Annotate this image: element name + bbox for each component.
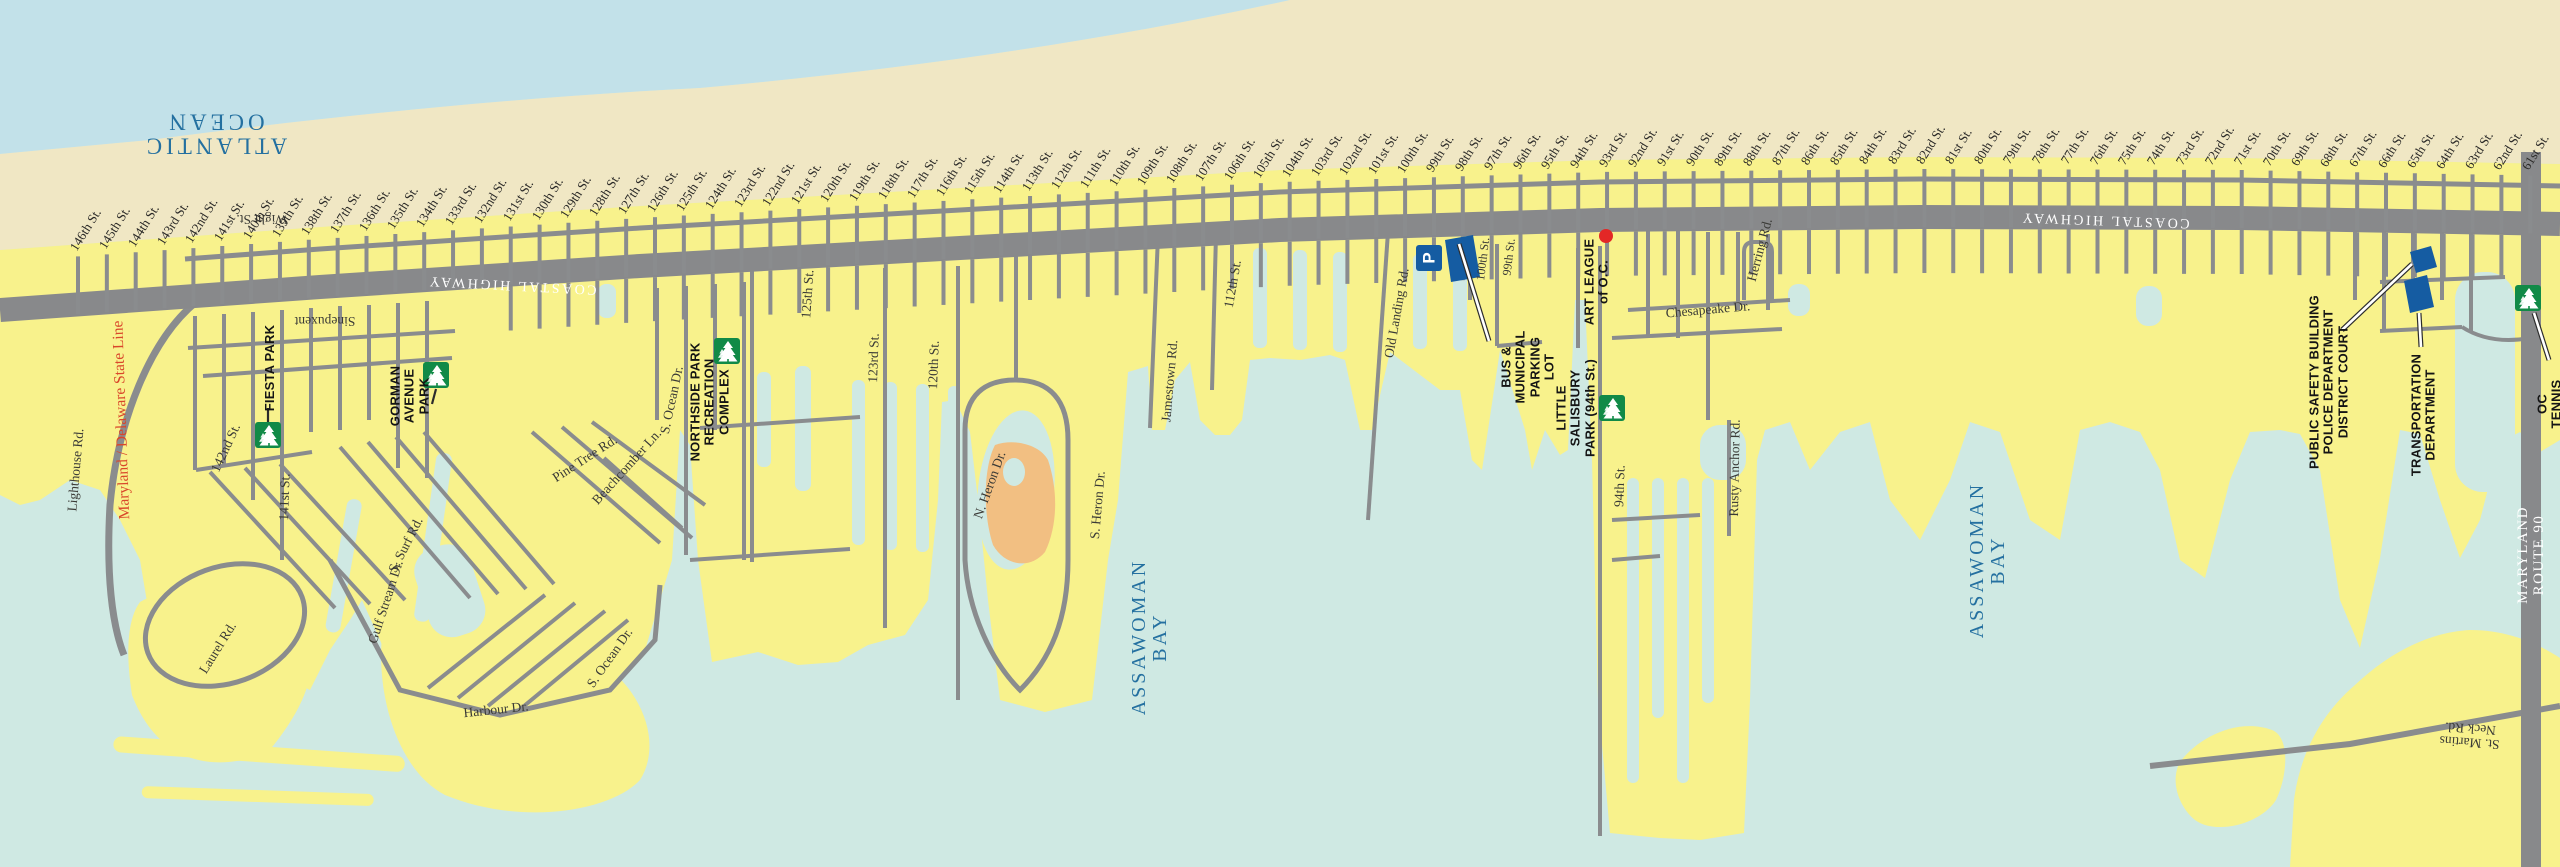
poi-northside-park: NORTHSIDE PARK RECREATION COMPLEX [689,343,732,462]
label-141st-st: 141st St. [277,473,293,521]
street-label-73rd-st-: 73rd St. [2172,124,2207,167]
street-label-146th-st-: 146th St. [66,206,104,254]
street-label-65th-st-: 65th St. [2403,128,2438,171]
label-maryland-delaware-state-line: Maryland / Delaware State Line [110,320,133,519]
street-label-68th-st-: 68th St. [2317,127,2352,170]
label-sinepuxent: Sinepuxent [295,314,356,328]
label-coastal-highway-east: COASTAL HIGHWAY [2020,209,2190,230]
poi-transportation-department: TRANSPORTATION DEPARTMENT [2410,354,2439,476]
street-label-97th-st-: 97th St. [1480,131,1515,174]
street-label-89th-st-: 89th St. [1711,126,1746,169]
poi-public-safety-complex: PUBLIC SAFETY BUILDING POLICE DEPARTMENT… [2308,295,2351,469]
street-label-75th-st-: 75th St. [2115,125,2150,168]
street-label-85th-st-: 85th St. [1826,125,1861,168]
street-label-113th-st-: 113th St. [1018,146,1056,194]
label-94th-st-lower: 94th St. [1612,465,1628,507]
label-142nd-st: 142nd St. [209,422,244,475]
street-label-88th-st-: 88th St. [1740,126,1775,169]
label-laurel-rd: Laurel Rd. [197,620,240,677]
label-112th-st-lower: 112th St. [1222,259,1244,309]
street-label-87th-st-: 87th St. [1769,125,1804,168]
map-labels: ATLANTIC OCEANWight St.COASTAL HIGHWAYCO… [0,0,2560,867]
label-s-heron-dr: S. Heron Dr. [1088,470,1108,539]
street-label-78th-st-: 78th St. [2028,125,2063,168]
label-123rd-st-lower: 123rd St. [866,333,882,383]
poi-fiesta-park: FIESTA PARK [263,325,277,411]
label-n-heron-dr: N. Heron Dr. [971,449,1009,520]
label-120th-st-lower: 120th St. [926,340,942,389]
street-label-98th-st-: 98th St. [1451,131,1486,174]
poi-bus-municipal-parking-lot: BUS & MUNICIPAL PARKING LOT [1499,330,1556,403]
label-lighthouse-rd: Lighthouse Rd. [65,428,86,512]
label-gulf-stream-dr: Gulf Stream Dr. [366,559,406,646]
label-old-landing-rd: Old Landing Rd. [1382,267,1412,359]
map: P ATLANTIC OCEANWight St.COASTAL HIGHWAY… [0,0,2560,867]
label-herring-rd: Herring Rd. [1745,217,1776,283]
street-label-138th-st-: 138th St. [297,189,335,237]
label-atlantic-ocean: ATLANTIC OCEAN [143,109,287,158]
street-label-90th-st-: 90th St. [1682,126,1717,169]
street-label-86th-st-: 86th St. [1797,125,1832,168]
label-rusty-anchor-rd: Rusty Anchor Rd. [1727,419,1743,516]
label-harbour-dr: Harbour Dr. [463,699,529,720]
label-100th-st-lower: 100th St. [1474,237,1492,282]
street-label-95th-st-: 95th St. [1538,129,1573,172]
street-label-133rd-st-: 133rd St. [441,179,480,228]
label-chesapeake-dr: Chesapeake Dr. [1665,299,1751,321]
poi-oc-tennis: OC TENNIS [2536,380,2560,429]
label-assawoman-bay-west: ASSAWOMAN BAY [1129,559,1171,716]
label-jamestown-rd: Jamestown Rd. [1159,339,1180,422]
street-label-80th-st-: 80th St. [1971,124,2006,167]
poi-art-league: ART LEAGUE of O.C. [1583,239,1612,326]
poi-gorman-avenue-park: GORMAN AVENUE PARK [389,366,432,426]
label-s-ocean-dr-upper: S. Ocean Dr. [658,365,686,435]
street-label-96th-st-: 96th St. [1509,130,1544,173]
street-label-84th-st-: 84th St. [1855,125,1890,168]
street-label-70th-st-: 70th St. [2259,126,2294,169]
street-label-83rd-st-: 83rd St. [1884,124,1919,167]
street-label-127th-st-: 127th St. [615,169,653,217]
street-label-93rd-st-: 93rd St. [1595,127,1630,170]
label-maryland-route-90: MARYLAND ROUTE 90 [2516,506,2548,604]
poi-little-salisbury-park: LITTLE SALISBURY PARK (94th St.) [1555,359,1598,457]
street-label-79th-st-: 79th St. [1999,124,2034,167]
label-assawoman-bay-east: ASSAWOMAN BAY [1967,482,2009,639]
label-s-ocean-dr-lower: S. Ocean Dr. [584,626,635,691]
label-st-martins-neck-rd: St. Martins Neck Rd. [2424,718,2516,753]
label-125th-st-lower: 125th St. [799,269,817,319]
label-99th-st-lower: 99th St. [1500,238,1517,277]
street-label-92nd-st-: 92nd St. [1624,124,1661,169]
street-label-74th-st-: 74th St. [2144,125,2179,168]
street-label-94th-st-: 94th St. [1567,128,1602,171]
label-coastal-highway-west: COASTAL HIGHWAY [427,272,597,296]
street-label-108th-st-: 108th St. [1163,138,1201,186]
street-label-67th-st-: 67th St. [2346,127,2381,170]
